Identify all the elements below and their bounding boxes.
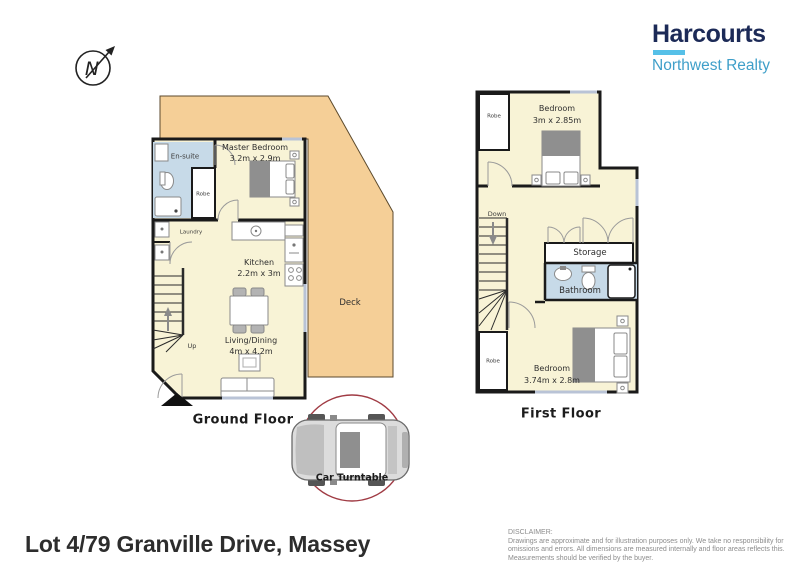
first-floor-plan [467,85,647,405]
label-bathroom: Bathroom [559,287,601,296]
floorplan-page: N Harcourts Northwest Realty [0,0,800,577]
label-ff-robe-bottom: Robe [486,359,500,365]
label-gf-robe: Robe [196,192,210,198]
compass-north-label: N [85,58,99,80]
label-laundry: Laundry [180,230,202,236]
label-ensuite: En-suite [171,154,199,161]
agency-logo: Harcourts Northwest Realty [652,22,770,73]
label-bedroom-top-dims: 3m x 2.85m [533,117,581,125]
ff-robe-top-closet [479,94,509,150]
agency-logo-brand: Harcourts [652,22,770,47]
disclaimer-body: Drawings are approximate and for illustr… [508,538,800,564]
label-ff-robe-top: Robe [487,114,501,120]
label-deck: Deck [339,299,360,308]
label-master-dims: 3.2m x 2.9m [230,155,281,163]
agency-logo-subtitle: Northwest Realty [652,58,770,74]
label-living-dims: 4m x 4.2m [229,348,272,356]
ground-floor-plan [140,85,410,420]
label-down: Down [488,211,506,218]
car-turntable [290,392,414,508]
ground-floor-caption: Ground Floor [193,414,294,427]
compass-icon: N [65,35,125,93]
disclaimer: DISCLAIMER: Drawings are approximate and… [508,529,800,563]
label-kitchen: Kitchen [244,259,274,267]
property-address: Lot 4/79 Granville Drive, Massey [25,531,370,558]
label-kitchen-dims: 2.2m x 3m [237,270,280,278]
label-bedroom-bottom-dims: 3.74m x 2.8m [524,377,580,385]
agency-logo-underline [653,50,685,55]
ff-bed-bottom [573,316,630,393]
car-turntable-label: Car Turntable [316,473,388,483]
label-living: Living/Dining [225,337,277,345]
label-bedroom-top: Bedroom [539,105,575,113]
label-master-bedroom: Master Bedroom [222,144,288,152]
label-storage: Storage [573,249,606,258]
label-up: Up [188,343,197,350]
first-floor-caption: First Floor [521,408,601,421]
label-bedroom-bottom: Bedroom [534,365,570,373]
disclaimer-title: DISCLAIMER: [508,529,800,538]
